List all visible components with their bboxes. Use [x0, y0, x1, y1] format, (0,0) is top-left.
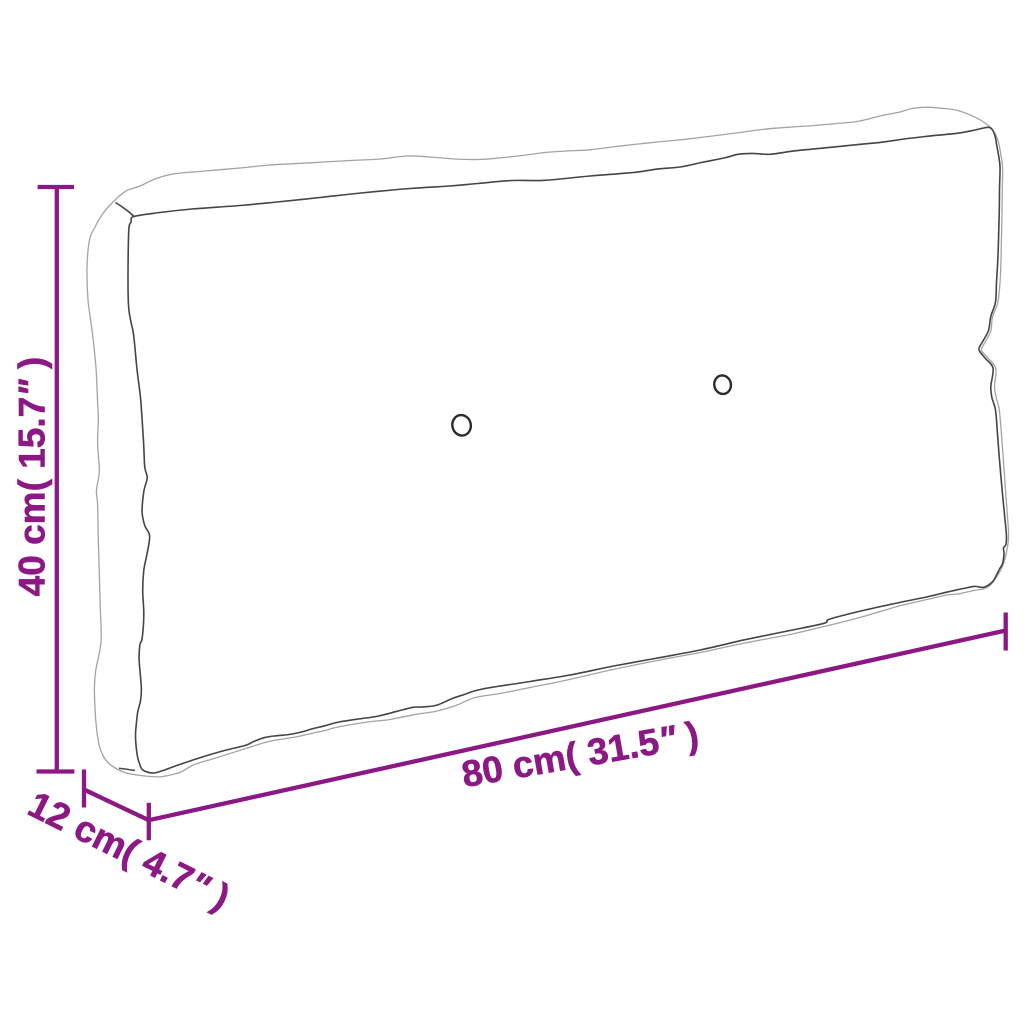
svg-text:40 cm( 15.7" ): 40 cm( 15.7" ) [12, 357, 53, 597]
